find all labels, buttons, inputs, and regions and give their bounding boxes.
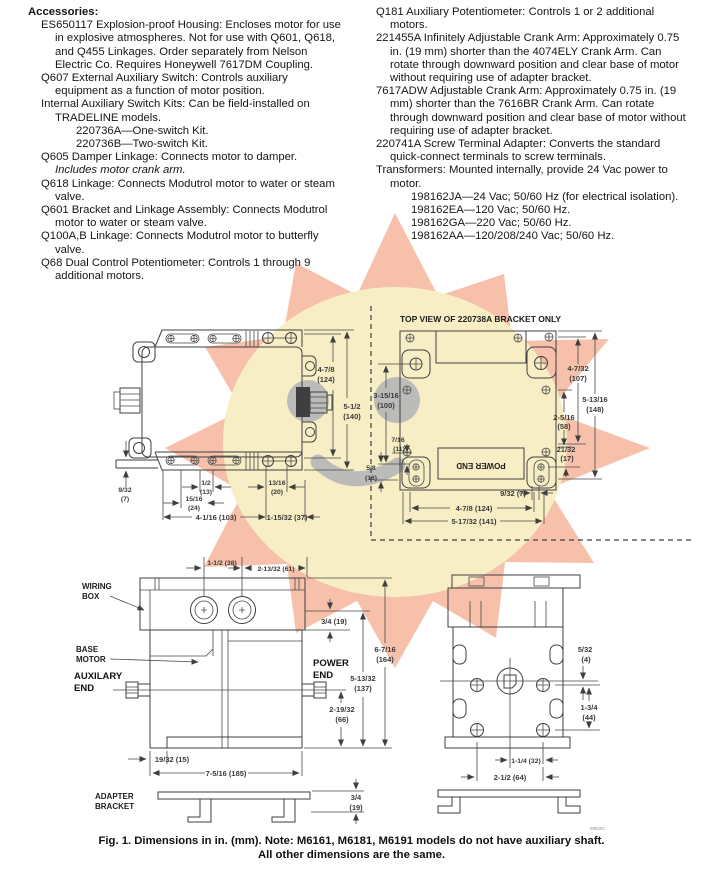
motor-side-view-drawing: 1-1/2 (38) 2-13/32 (61) WIRING BOX BASE … (74, 557, 396, 824)
dim-label: 1-3/4 (580, 703, 598, 712)
dim-label: (13) (200, 489, 212, 496)
datasheet-page: { "watermark": { "star_color": "#f6c0aa"… (0, 0, 703, 870)
dim-label: (107) (569, 374, 587, 383)
dim-label: (4) (581, 655, 591, 664)
dim-label: (148) (586, 405, 604, 414)
figure-caption: Fig. 1. Dimensions in in. (mm). Note: M6… (0, 835, 703, 863)
dim-label: (24) (188, 505, 200, 512)
dim-label: 3/4 (19) (321, 617, 347, 626)
dim-label: 2-19/32 (329, 705, 354, 714)
dim-label: 2-1/2 (64) (494, 773, 527, 782)
dim-label: 3-15/16 (373, 391, 398, 400)
dim-label: 19/32 (15) (155, 755, 190, 764)
adapter-bracket-label: ADAPTER (95, 792, 134, 801)
adapter-bracket-label: BRACKET (95, 802, 134, 811)
base-motor-label: MOTOR (76, 655, 106, 664)
dim-label: 4-1/16 (103) (196, 513, 237, 522)
dim-label: 4-7/8 (317, 365, 334, 374)
dim-label: 5/8 (366, 465, 376, 472)
dim-label: 5/32 (578, 645, 593, 654)
dim-label: (137) (354, 684, 372, 693)
power-end-label: POWER (313, 658, 349, 669)
auxiliary-end-label: AUXILARY (74, 671, 123, 682)
dim-label: 2-13/32 (61) (257, 566, 294, 573)
dim-label: 7-5/16 (185) (206, 769, 247, 778)
dim-label: (20) (271, 489, 283, 496)
dim-label: 5-13/16 (582, 395, 607, 404)
dim-label: (19) (349, 803, 363, 812)
dim-label: (17) (560, 454, 574, 463)
dim-label: 13/16 (268, 480, 285, 487)
dim-label: 1-1/2 (38) (207, 560, 236, 567)
wiring-box-label: BOX (82, 592, 100, 601)
figure-caption-line-2: All other dimensions are the same. (0, 849, 703, 863)
bracket-view-title: TOP VIEW OF 220738A BRACKET ONLY (400, 314, 561, 324)
shaft-hub (296, 387, 310, 417)
dim-label: 6-7/16 (374, 645, 395, 654)
dim-label: (58) (557, 422, 571, 431)
dim-label: 21/32 (557, 445, 576, 454)
dim-label: 15/16 (185, 496, 202, 503)
dim-label: 3/4 (351, 793, 362, 802)
dim-label: 5-13/32 (350, 674, 375, 683)
figure-1-dimension-drawings: 9/32 (7) 1/2 (13) 13/16 (20) 15/16 (24) … (0, 0, 703, 870)
dim-label: 4-7/8 (124) (456, 504, 493, 513)
dim-label: (100) (377, 401, 395, 410)
drawing-code: M302G (590, 826, 605, 831)
power-end-label: END (313, 670, 333, 681)
dim-label: 5-17/32 (141) (451, 517, 497, 526)
dim-label: 5-1/2 (343, 402, 360, 411)
wiring-box-label: WIRING (82, 582, 112, 591)
dim-label: 9/32 (118, 487, 131, 494)
dim-label: 1-15/32 (37) (267, 513, 308, 522)
dim-label: 2-5/16 (553, 413, 574, 422)
power-end-label-rotated: POWER END (456, 461, 506, 470)
auxiliary-end-label: END (74, 683, 94, 694)
dim-label: (16) (365, 475, 377, 482)
dim-label: (124) (317, 375, 335, 384)
dim-label: (11) (393, 446, 405, 453)
dim-label: 1-1/4 (32) (511, 758, 540, 765)
motor-end-view-drawing: 5/32 (4) 1-3/4 (44) 1-1/4 (32) 2-1/2 (64… (438, 575, 605, 831)
dim-label: (44) (582, 713, 596, 722)
dim-label: 4-7/32 (567, 364, 588, 373)
dim-label: 1/2 (201, 480, 211, 487)
dim-label: (164) (376, 655, 394, 664)
motor-top-view-drawing: 9/32 (7) 1/2 (13) 13/16 (20) 15/16 (24) … (114, 330, 361, 522)
dim-label: (66) (335, 715, 349, 724)
base-motor-label: BASE (76, 645, 99, 654)
dim-label: (7) (121, 496, 129, 503)
dim-label: (140) (343, 412, 361, 421)
dim-label: 7/16 (391, 437, 404, 444)
bracket-top-view-drawing: TOP VIEW OF 220738A BRACKET ONLY POWER E… (365, 306, 695, 540)
figure-caption-line-1: Fig. 1. Dimensions in in. (mm). Note: M6… (0, 835, 703, 849)
dim-label: 9/32 (7) (500, 489, 526, 498)
